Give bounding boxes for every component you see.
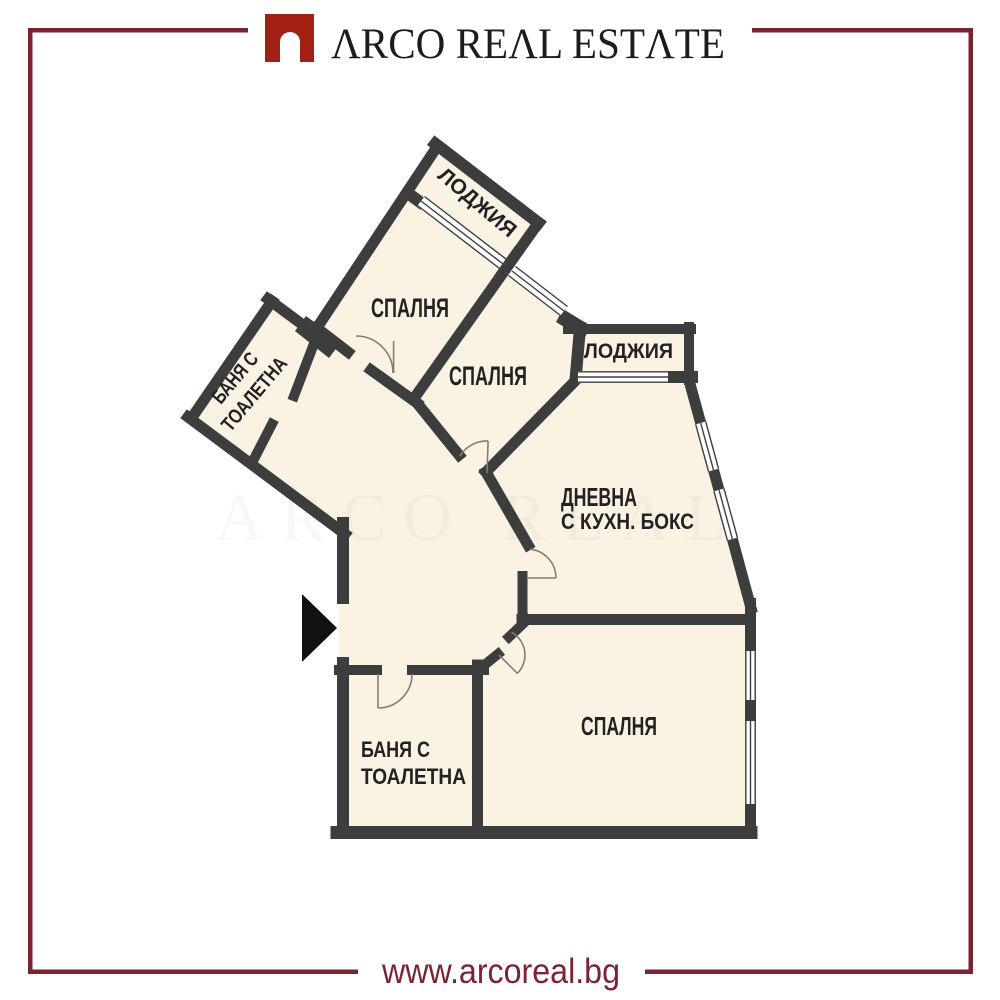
svg-text:www.arcoreal.bg: www.arcoreal.bg [381,952,620,991]
svg-text:БАНЯ С: БАНЯ С [361,737,430,762]
svg-text:ДНЕВНА: ДНЕВНА [561,482,637,512]
svg-text:СПАЛНЯ: СПАЛНЯ [449,361,527,391]
svg-text:С КУХН. БОКС: С КУХН. БОКС [561,509,694,534]
svg-text:ΛRCO REΛL ESTΛTE: ΛRCO REΛL ESTΛTE [331,21,725,68]
svg-text:СПАЛНЯ: СПАЛНЯ [371,293,449,323]
svg-text:ЛОДЖИЯ: ЛОДЖИЯ [584,340,673,363]
svg-text:СПАЛНЯ: СПАЛНЯ [581,711,657,741]
svg-text:ТОАЛЕТНА: ТОАЛЕТНА [361,764,466,789]
